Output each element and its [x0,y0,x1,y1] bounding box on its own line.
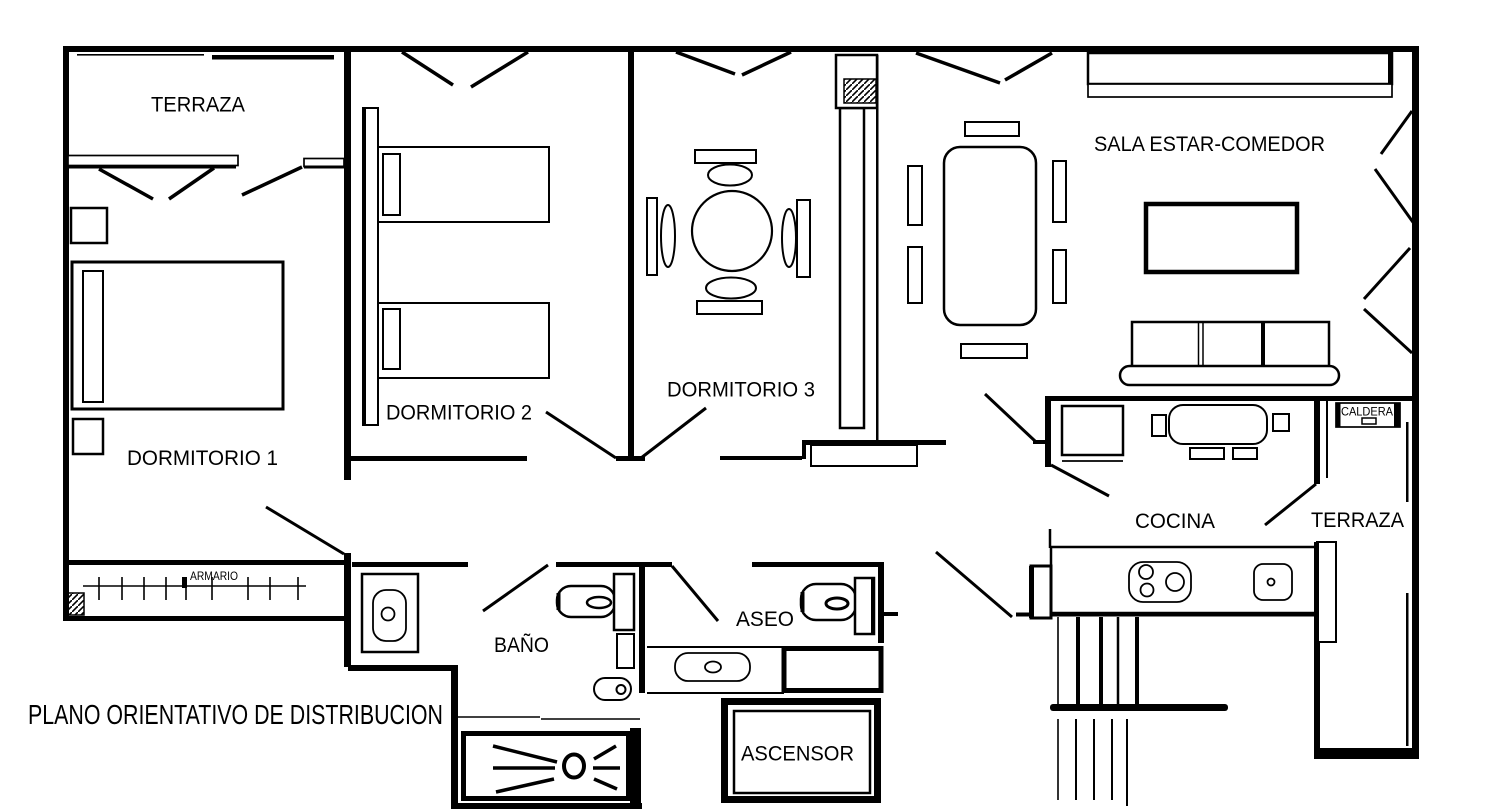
svg-text:DORMITORIO 2: DORMITORIO 2 [386,402,532,425]
svg-text:BAÑO: BAÑO [494,633,549,657]
svg-text:TERRAZA: TERRAZA [151,94,245,117]
svg-text:CALDERA: CALDERA [1341,405,1393,419]
svg-text:DORMITORIO 3: DORMITORIO 3 [667,379,815,402]
svg-text:DORMITORIO 1: DORMITORIO 1 [127,447,278,470]
svg-text:ASEO: ASEO [736,608,794,631]
svg-text:TERRAZA: TERRAZA [1311,509,1404,532]
svg-text:SALA ESTAR-COMEDOR: SALA ESTAR-COMEDOR [1094,132,1325,156]
svg-text:ARMARIO: ARMARIO [190,569,238,583]
svg-text:COCINA: COCINA [1135,510,1215,533]
svg-text:PLANO ORIENTATIVO DE DISTRIBUC: PLANO ORIENTATIVO DE DISTRIBUCION [28,699,443,730]
svg-text:ASCENSOR: ASCENSOR [741,743,854,766]
